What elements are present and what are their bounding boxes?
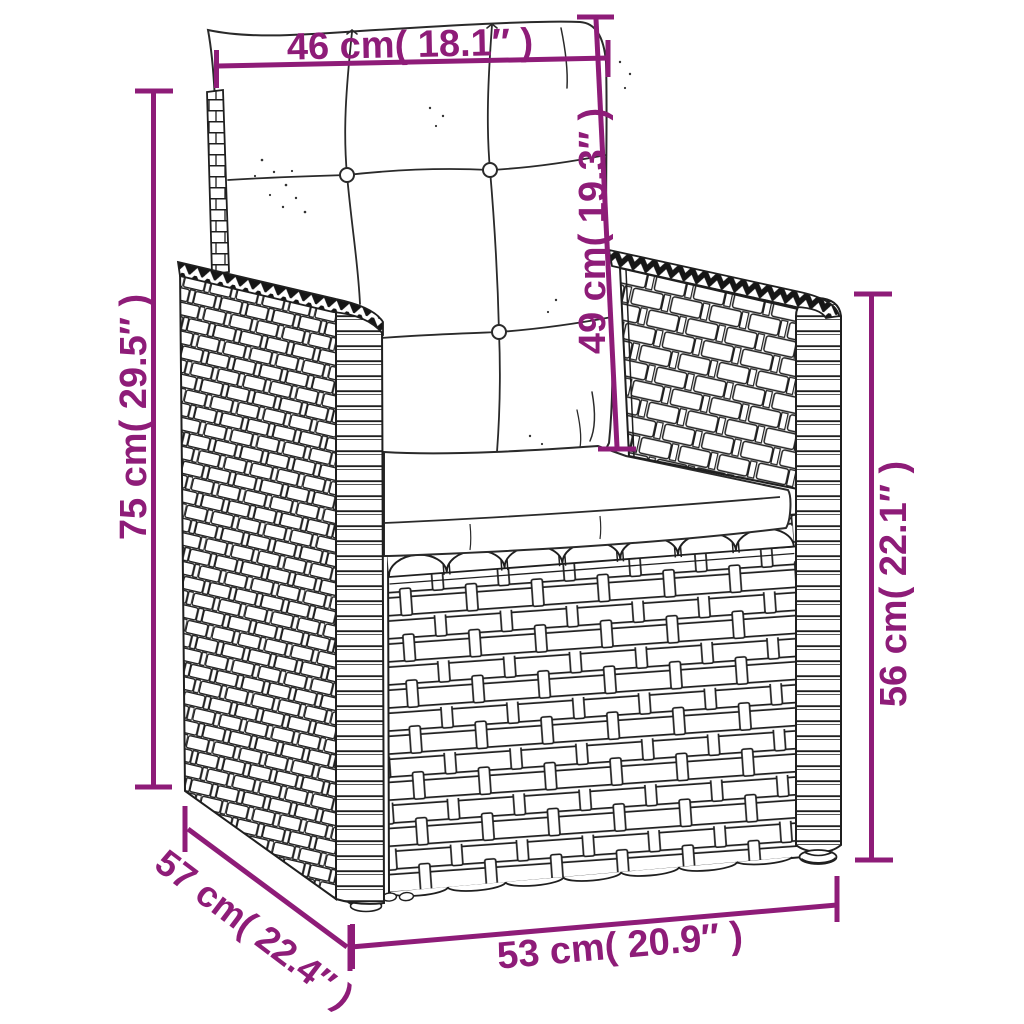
- svg-text:75 cm( 29.5″ ): 75 cm( 29.5″ ): [113, 294, 155, 540]
- svg-text:46 cm( 18.1″ ): 46 cm( 18.1″ ): [286, 21, 533, 68]
- svg-text:49 cm( 19.3″ ): 49 cm( 19.3″ ): [572, 108, 614, 354]
- svg-text:56 cm( 22.1″ ): 56 cm( 22.1″ ): [873, 461, 915, 707]
